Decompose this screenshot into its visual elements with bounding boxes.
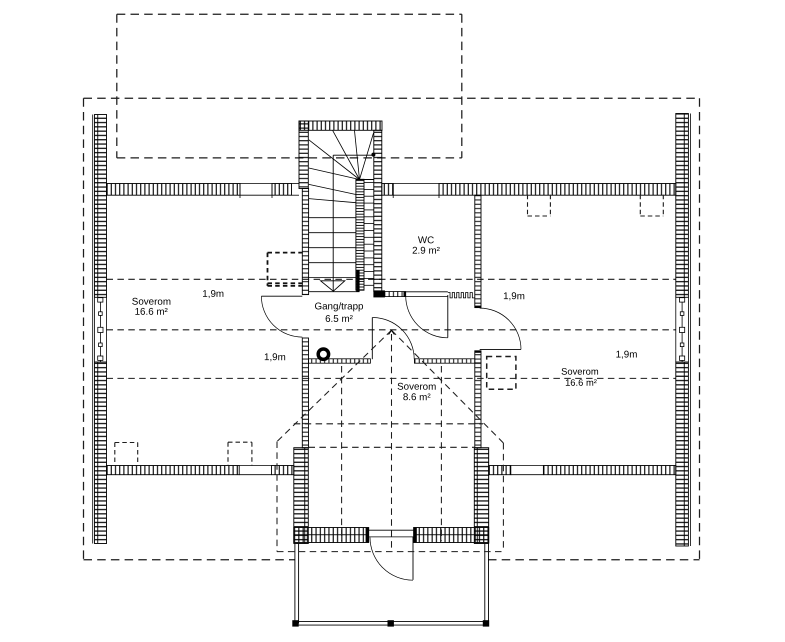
svg-text:Soverom: Soverom bbox=[561, 366, 599, 377]
svg-text:1,9m: 1,9m bbox=[616, 349, 638, 360]
svg-text:WC: WC bbox=[418, 235, 434, 246]
svg-text:2.9 m²: 2.9 m² bbox=[412, 246, 441, 257]
svg-text:1,9m: 1,9m bbox=[264, 352, 286, 363]
svg-text:1,9m: 1,9m bbox=[503, 291, 525, 302]
svg-text:16.6 m²: 16.6 m² bbox=[135, 307, 169, 318]
svg-text:Soverom: Soverom bbox=[397, 382, 436, 393]
svg-text:Gang/trapp: Gang/trapp bbox=[314, 301, 364, 312]
svg-text:16.6 m²: 16.6 m² bbox=[565, 377, 597, 388]
svg-text:6.5 m²: 6.5 m² bbox=[325, 314, 354, 325]
svg-text:8.6 m²: 8.6 m² bbox=[403, 392, 432, 403]
svg-text:1,9m: 1,9m bbox=[202, 289, 224, 300]
